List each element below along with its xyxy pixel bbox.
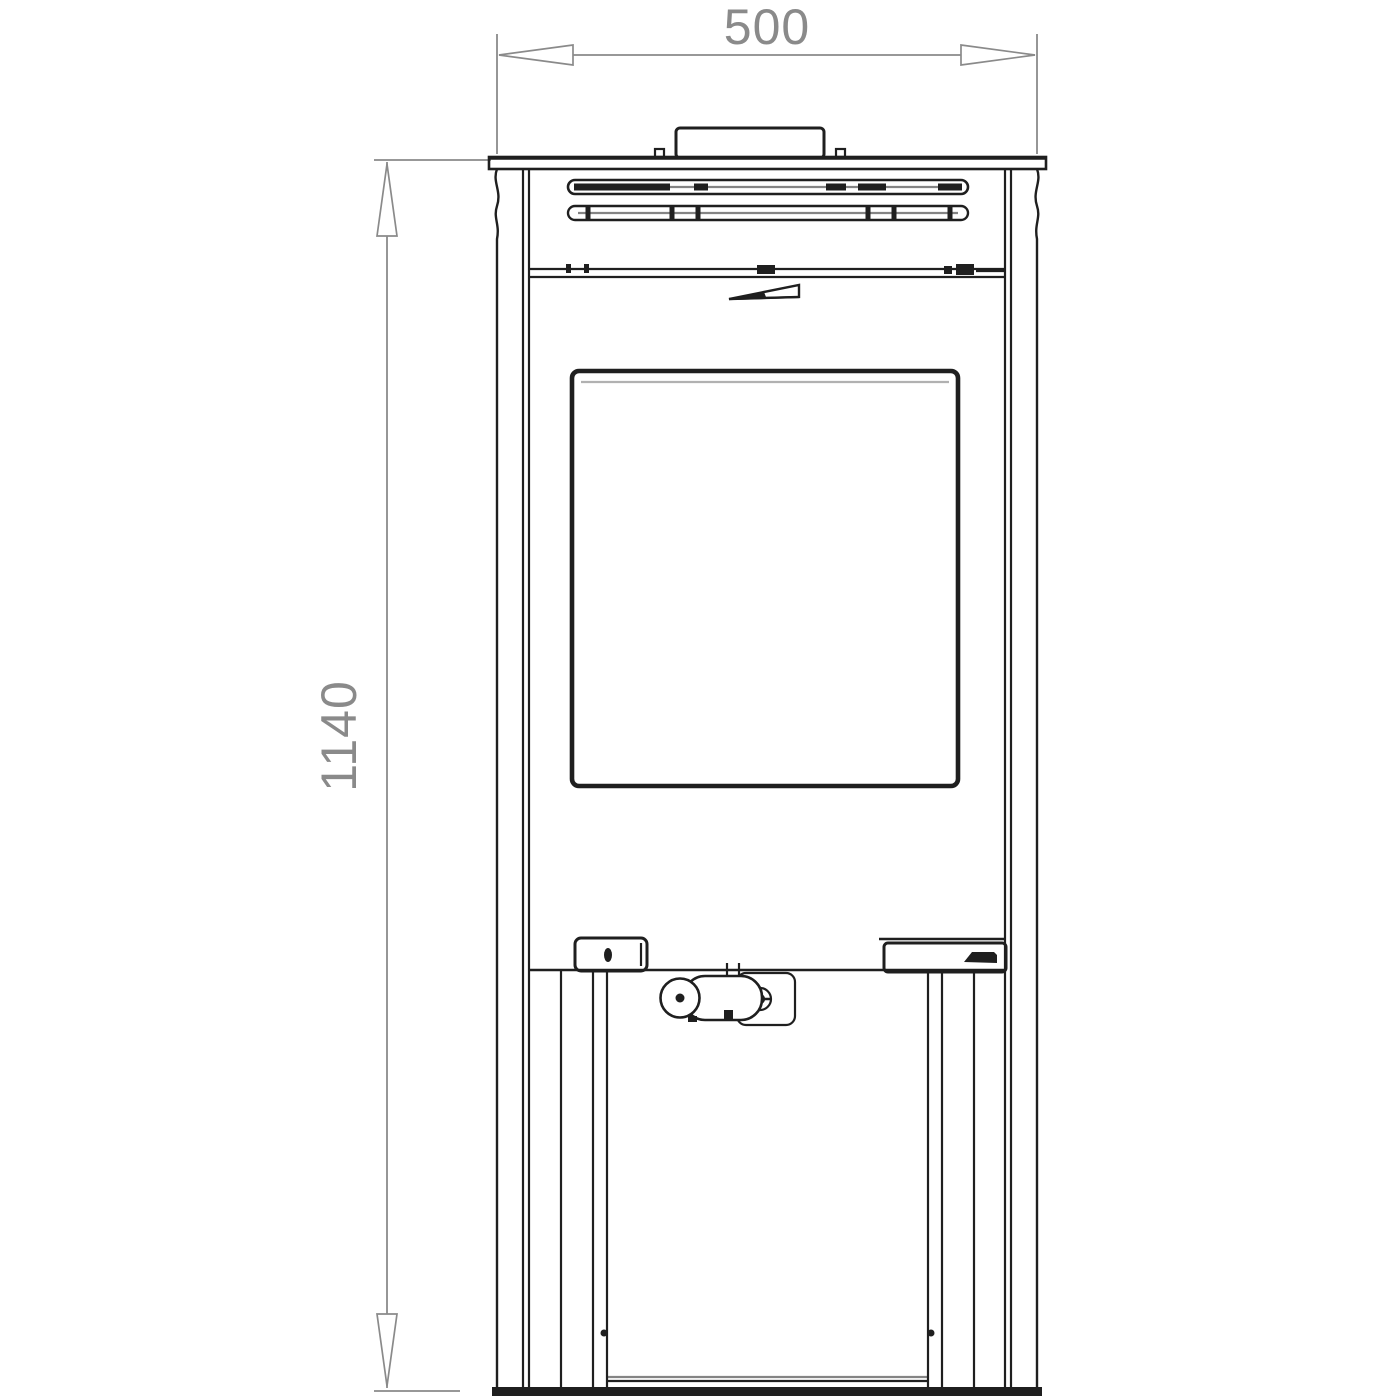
height-dimension-label: 1140: [311, 680, 367, 792]
top-plate: [488, 157, 1047, 169]
pedestal-base: [561, 971, 974, 1387]
side-panel-left: [523, 169, 529, 1387]
technical-drawing-canvas: 500 1140: [0, 0, 1398, 1398]
top-section-divider: [529, 264, 1005, 277]
width-dimension: 500: [497, 0, 1037, 154]
door-handle: [879, 939, 1006, 972]
height-dimension: 1140: [311, 160, 491, 1391]
lower-vent-slot: [568, 206, 968, 220]
screw-dot-right: [928, 1330, 935, 1337]
air-control-lever: [729, 285, 799, 299]
stove-body: [488, 128, 1047, 1396]
door-glass-window: [572, 371, 958, 786]
flue-collar: [655, 128, 845, 158]
side-panel-right: [1005, 169, 1011, 1387]
door-hinge-block: [575, 938, 647, 971]
arrow-left-icon: [499, 45, 573, 65]
arrow-right-icon: [961, 45, 1035, 65]
width-dimension-label: 500: [724, 0, 810, 55]
floor-base-bar: [492, 1387, 1042, 1396]
outer-edge-right: [1036, 169, 1039, 1388]
stove-front-elevation: 500 1140: [0, 0, 1398, 1398]
door-latch-mechanism: [661, 963, 796, 1025]
screw-dot-left: [601, 1330, 608, 1337]
arrow-down-icon: [377, 1314, 397, 1386]
upper-vent-slot: [568, 180, 968, 194]
flue-collar-outline: [676, 128, 824, 158]
outer-edge-left: [496, 169, 499, 1388]
arrow-up-icon: [377, 164, 397, 236]
